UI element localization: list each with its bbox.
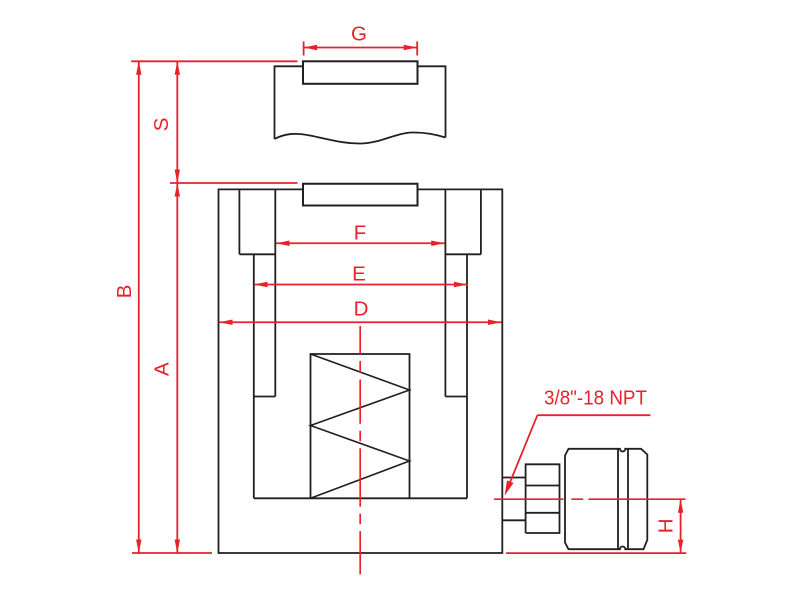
svg-text:3/8"-18 NPT: 3/8"-18 NPT: [544, 388, 647, 410]
svg-text:A: A: [151, 362, 174, 376]
svg-text:G: G: [351, 23, 367, 46]
svg-text:S: S: [150, 118, 173, 132]
svg-text:E: E: [352, 263, 366, 286]
svg-text:F: F: [354, 221, 367, 244]
svg-text:D: D: [354, 298, 369, 321]
svg-text:H: H: [654, 518, 677, 533]
svg-text:B: B: [113, 285, 136, 299]
